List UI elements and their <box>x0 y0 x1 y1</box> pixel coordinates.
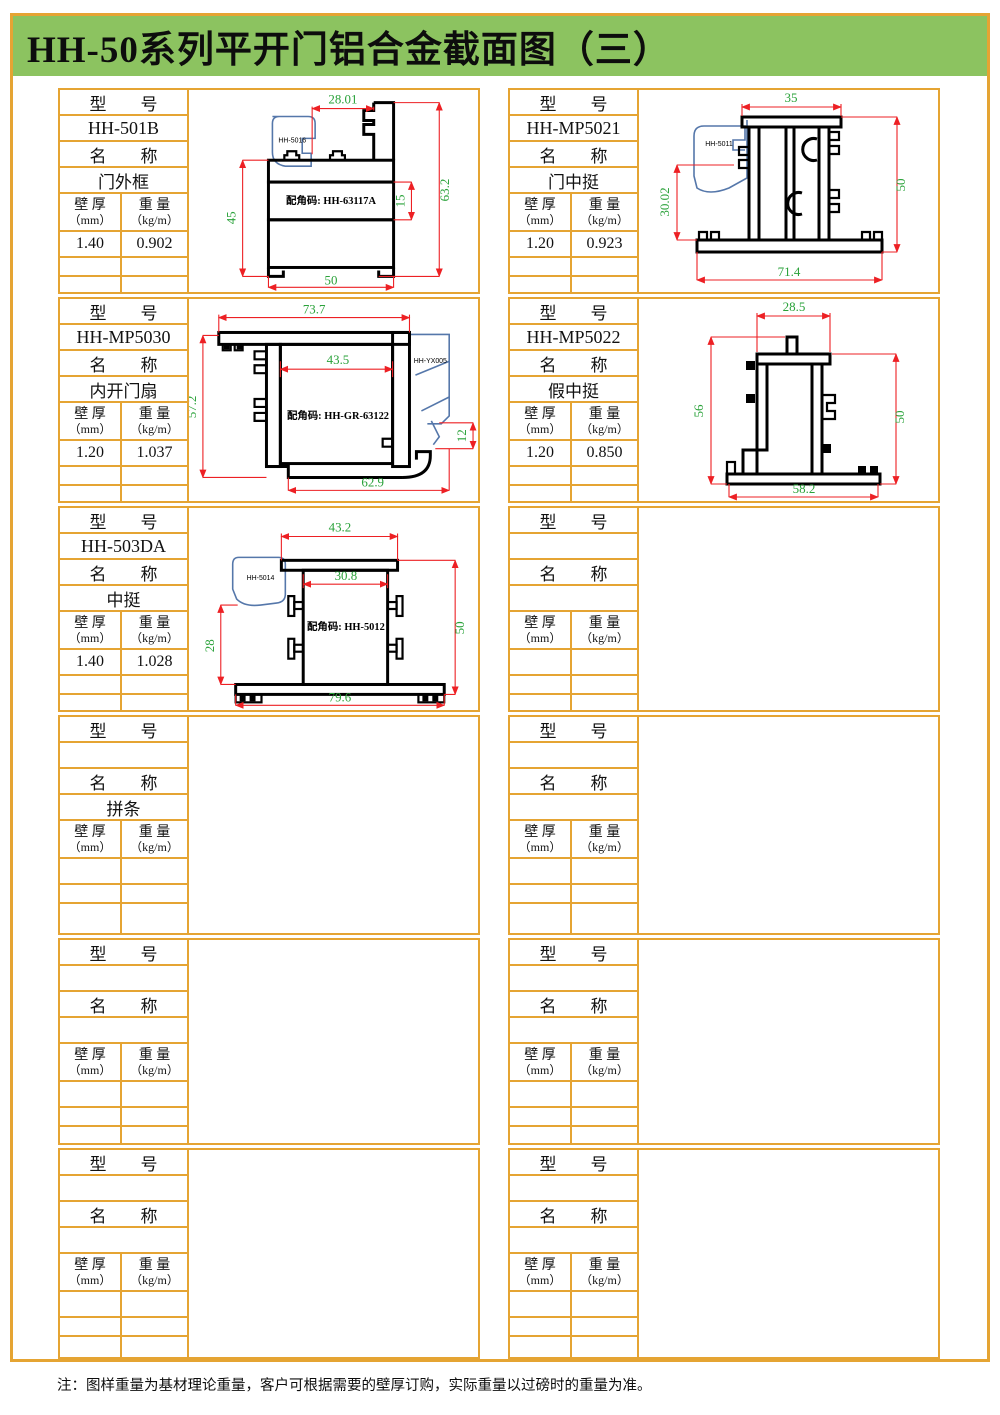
name-value: 内开门扇 <box>60 377 187 403</box>
wall-weight-values: 1.20 0.850 <box>510 441 637 467</box>
name-value <box>60 1018 187 1044</box>
empty-row <box>60 1337 187 1357</box>
profile-outline <box>219 332 431 477</box>
profile-outline <box>727 337 880 484</box>
dim-inner-label: 15 <box>393 194 408 207</box>
profile-outline <box>697 117 882 252</box>
name-label: 名 称 <box>510 992 637 1018</box>
weight-header-cell: 重 量 （kg/m） <box>572 194 637 230</box>
model-value: HH-MP5030 <box>60 325 187 351</box>
wall-header-cell: 壁 厚 （mm） <box>510 403 572 439</box>
wall-weight-values <box>510 1082 637 1108</box>
profile-drawing-hhmp5022: 28.5 56 50 58.2 <box>639 299 938 501</box>
model-value <box>510 1176 637 1202</box>
empty-row <box>510 885 637 904</box>
panel-empty-2: 型 号 名 称 壁 厚 （mm） 重 量 （kg/m） <box>508 715 940 935</box>
dim-bottom-label: 50 <box>325 272 338 287</box>
name-label: 名 称 <box>60 142 187 168</box>
model-value <box>60 1176 187 1202</box>
wall-weight-values: 1.20 0.923 <box>510 232 637 258</box>
spec-table: 型 号 名 称 壁 厚 （mm） 重 量 （kg/m） <box>60 940 189 1143</box>
corner-code: 配角码: HH-63117A <box>286 194 376 207</box>
wall-weight-header: 壁 厚 （mm） 重 量 （kg/m） <box>510 1254 637 1292</box>
wall-weight-header: 壁 厚 （mm） 重 量 （kg/m） <box>510 612 637 650</box>
spec-table: 型 号 名 称 拼条 壁 厚 （mm） 重 量 （kg/m） <box>60 717 189 933</box>
model-label: 型 号 <box>60 90 187 116</box>
empty-row <box>510 695 637 710</box>
model-label: 型 号 <box>60 717 187 743</box>
dim-top-label: 28.5 <box>783 299 806 314</box>
wall-header-cell: 壁 厚 （mm） <box>510 1254 572 1290</box>
panel-empty-5: 型 号 名 称 壁 厚 （mm） 重 量 （kg/m） <box>58 1148 480 1359</box>
wall-value <box>510 1082 572 1106</box>
name-value: 门外框 <box>60 168 187 194</box>
wall-header-cell: 壁 厚 （mm） <box>60 403 122 439</box>
profile-outline <box>268 103 393 277</box>
weight-header-cell: 重 量 （kg/m） <box>122 403 187 439</box>
corner-code: 配角码: HH-GR-63122 <box>287 409 389 422</box>
weight-value <box>122 1082 187 1106</box>
wall-weight-values <box>60 1082 187 1108</box>
dim-left-label: 56 <box>691 404 706 418</box>
empty-row <box>510 1108 637 1127</box>
wall-value <box>60 1082 122 1106</box>
panel-pintiao: 型 号 名 称 拼条 壁 厚 （mm） 重 量 （kg/m） <box>58 715 480 935</box>
weight-value <box>122 859 187 883</box>
dim-left-label: 57.2 <box>189 396 199 419</box>
empty-row <box>60 1127 187 1143</box>
wall-header-cell: 壁 厚 （mm） <box>60 1044 122 1080</box>
dim-right-label: 12 <box>454 429 469 442</box>
panel-hhmp5030: 型 号 HH-MP5030 名 称 内开门扇 壁 厚 （mm） 重 量 （kg/… <box>58 297 480 503</box>
dim-bottom-label: 62.9 <box>361 474 384 489</box>
weight-value: 0.850 <box>572 441 637 465</box>
panel-hh503da: 型 号 HH-503DA 名 称 中挺 壁 厚 （mm） 重 量 （kg/m） … <box>58 506 480 712</box>
wall-weight-values <box>510 1292 637 1318</box>
wall-weight-header: 壁 厚 （mm） 重 量 （kg/m） <box>510 194 637 232</box>
wall-weight-header: 壁 厚 （mm） 重 量 （kg/m） <box>60 194 187 232</box>
model-value: HH-MP5022 <box>510 325 637 351</box>
profile-drawing-hh503da: HH-5014 配角码: HH-5012 <box>189 508 478 710</box>
model-label: 型 号 <box>510 940 637 966</box>
wall-header-cell: 壁 厚 （mm） <box>510 612 572 648</box>
empty-row <box>60 467 187 486</box>
wall-header-cell: 壁 厚 （mm） <box>510 821 572 857</box>
panel-empty-1: 型 号 名 称 壁 厚 （mm） 重 量 （kg/m） <box>508 506 940 712</box>
wall-weight-values: 1.40 0.902 <box>60 232 187 258</box>
spec-table: 型 号 名 称 壁 厚 （mm） 重 量 （kg/m） <box>510 717 639 933</box>
wall-header-cell: 壁 厚 （mm） <box>60 1254 122 1290</box>
wall-weight-values <box>60 859 187 885</box>
empty-row <box>60 1318 187 1337</box>
name-label: 名 称 <box>60 992 187 1018</box>
dim-bottom-label: 58.2 <box>793 481 816 496</box>
model-value <box>60 966 187 992</box>
empty-row <box>510 1318 637 1337</box>
drawing-area <box>639 508 938 710</box>
weight-value <box>122 1292 187 1316</box>
footer-note: 注：图样重量为基材理论重量，客户可根据需要的壁厚订购，实际重量以过磅时的重量为准… <box>57 1374 652 1395</box>
part-label: HH-5016 <box>278 137 306 144</box>
weight-value <box>572 859 637 883</box>
model-label: 型 号 <box>60 299 187 325</box>
drawing-area: HH-YX005 配角码: HH-GR-63122 <box>189 299 478 501</box>
panel-empty-3: 型 号 名 称 壁 厚 （mm） 重 量 （kg/m） <box>58 938 480 1145</box>
drawing-area: HH-5016 配角码: HH-63117A <box>189 90 478 292</box>
model-label: 型 号 <box>510 508 637 534</box>
wall-weight-header: 壁 厚 （mm） 重 量 （kg/m） <box>60 403 187 441</box>
dim-top-label: 35 <box>785 90 798 105</box>
name-value: 拼条 <box>60 795 187 821</box>
empty-row <box>60 258 187 277</box>
name-label: 名 称 <box>60 351 187 377</box>
weight-value <box>572 1082 637 1106</box>
wall-weight-values: 1.40 1.028 <box>60 650 187 676</box>
model-value <box>510 966 637 992</box>
name-label: 名 称 <box>510 142 637 168</box>
drawing-area <box>639 717 938 933</box>
wall-weight-values <box>60 1292 187 1318</box>
empty-row <box>510 486 637 501</box>
wall-header-cell: 壁 厚 （mm） <box>510 194 572 230</box>
weight-value: 0.923 <box>572 232 637 256</box>
spec-table: 型 号 HH-MP5030 名 称 内开门扇 壁 厚 （mm） 重 量 （kg/… <box>60 299 189 501</box>
dim-top-label: 28.01 <box>328 92 357 107</box>
empty-row <box>60 676 187 695</box>
model-label: 型 号 <box>510 299 637 325</box>
drawing-area: 28.5 56 50 58.2 <box>639 299 938 501</box>
panel-hhmp5022: 型 号 HH-MP5022 名 称 假中挺 壁 厚 （mm） 重 量 （kg/m… <box>508 297 940 503</box>
gasket-part <box>409 334 449 444</box>
drawing-area: HH-5014 配角码: HH-5012 <box>189 508 478 710</box>
empty-row <box>60 885 187 904</box>
wall-value: 1.20 <box>510 232 572 256</box>
profile-drawing-hhmp5030: HH-YX005 配角码: HH-GR-63122 <box>189 299 478 501</box>
wall-header-cell: 壁 厚 （mm） <box>60 821 122 857</box>
wall-weight-header: 壁 厚 （mm） 重 量 （kg/m） <box>60 1254 187 1292</box>
empty-row <box>60 904 187 933</box>
empty-row <box>60 1108 187 1127</box>
weight-value: 1.028 <box>122 650 187 674</box>
drawing-area <box>639 940 938 1143</box>
wall-weight-header: 壁 厚 （mm） 重 量 （kg/m） <box>60 612 187 650</box>
empty-row <box>60 277 187 292</box>
model-value: HH-503DA <box>60 534 187 560</box>
title-bar: HH-50系列平开门铝合金截面图（三） <box>13 16 987 76</box>
weight-header-cell: 重 量 （kg/m） <box>122 1254 187 1290</box>
weight-header-cell: 重 量 （kg/m） <box>122 612 187 648</box>
drawing-area <box>189 1150 478 1357</box>
drawing-area <box>639 1150 938 1357</box>
wall-weight-values <box>510 859 637 885</box>
panel-hhmp5021: 型 号 HH-MP5021 名 称 门中挺 壁 厚 （mm） 重 量 （kg/m… <box>508 88 940 294</box>
name-value <box>60 1228 187 1254</box>
weight-header-cell: 重 量 （kg/m） <box>572 612 637 648</box>
wall-weight-header: 壁 厚 （mm） 重 量 （kg/m） <box>510 821 637 859</box>
empty-row <box>510 1337 637 1357</box>
dim-top-label: 73.7 <box>303 302 326 317</box>
empty-row <box>510 1127 637 1143</box>
wall-weight-header: 壁 厚 （mm） 重 量 （kg/m） <box>60 1044 187 1082</box>
spec-table: 型 号 名 称 壁 厚 （mm） 重 量 （kg/m） <box>510 940 639 1143</box>
empty-row <box>510 277 637 292</box>
model-value: HH-MP5021 <box>510 116 637 142</box>
dim-right-label: 50 <box>892 411 907 424</box>
spec-table: 型 号 HH-MP5021 名 称 门中挺 壁 厚 （mm） 重 量 （kg/m… <box>510 90 639 292</box>
name-value <box>510 795 637 821</box>
name-label: 名 称 <box>510 769 637 795</box>
name-value: 中挺 <box>60 586 187 612</box>
spec-table: 型 号 名 称 壁 厚 （mm） 重 量 （kg/m） <box>60 1150 189 1357</box>
dim-right-label: 50 <box>452 621 467 634</box>
weight-header-cell: 重 量 （kg/m） <box>572 1254 637 1290</box>
empty-row <box>60 695 187 710</box>
spec-table: 型 号 HH-MP5022 名 称 假中挺 壁 厚 （mm） 重 量 （kg/m… <box>510 299 639 501</box>
drawing-area <box>189 717 478 933</box>
model-label: 型 号 <box>60 508 187 534</box>
wall-value <box>510 859 572 883</box>
name-value <box>510 586 637 612</box>
spec-table: 型 号 名 称 壁 厚 （mm） 重 量 （kg/m） <box>510 1150 639 1357</box>
wall-weight-header: 壁 厚 （mm） 重 量 （kg/m） <box>510 1044 637 1082</box>
weight-value <box>572 1292 637 1316</box>
wall-header-cell: 壁 厚 （mm） <box>60 612 122 648</box>
dim-left-label: 45 <box>224 211 239 224</box>
part-label: HH-5011 <box>705 141 733 148</box>
weight-value: 0.902 <box>122 232 187 256</box>
empty-row <box>510 676 637 695</box>
model-label: 型 号 <box>510 1150 637 1176</box>
name-value: 门中挺 <box>510 168 637 194</box>
dim-bottom-label: 79.6 <box>329 689 352 704</box>
dim-top-label: 43.2 <box>329 520 352 535</box>
wall-value <box>510 1292 572 1316</box>
name-label: 名 称 <box>510 351 637 377</box>
model-value: HH-501B <box>60 116 187 142</box>
dim-inner-label: 43.5 <box>327 352 350 367</box>
empty-row <box>510 467 637 486</box>
weight-header-cell: 重 量 （kg/m） <box>572 821 637 857</box>
drawing-area: HH-5011 <box>639 90 938 292</box>
name-value <box>510 1228 637 1254</box>
profile-drawing-hhmp5021: HH-5011 <box>639 90 938 292</box>
wall-value <box>60 859 122 883</box>
wall-value: 1.20 <box>510 441 572 465</box>
model-label: 型 号 <box>60 1150 187 1176</box>
wall-header-cell: 壁 厚 （mm） <box>510 1044 572 1080</box>
model-value <box>510 534 637 560</box>
weight-header-cell: 重 量 （kg/m） <box>122 194 187 230</box>
wall-value: 1.40 <box>60 650 122 674</box>
name-value <box>510 1018 637 1044</box>
weight-header-cell: 重 量 （kg/m） <box>122 1044 187 1080</box>
model-label: 型 号 <box>510 717 637 743</box>
name-label: 名 称 <box>60 1202 187 1228</box>
empty-row <box>510 904 637 933</box>
name-label: 名 称 <box>60 769 187 795</box>
page-title: HH-50系列平开门铝合金截面图（三） <box>27 19 671 73</box>
weight-value: 1.037 <box>122 441 187 465</box>
wall-weight-header: 壁 厚 （mm） 重 量 （kg/m） <box>510 403 637 441</box>
dim-right-label: 50 <box>893 179 908 192</box>
model-value <box>60 743 187 769</box>
name-label: 名 称 <box>510 560 637 586</box>
model-label: 型 号 <box>510 90 637 116</box>
part-label: HH-YX005 <box>414 358 447 365</box>
wall-weight-header: 壁 厚 （mm） 重 量 （kg/m） <box>60 821 187 859</box>
model-value <box>510 743 637 769</box>
wall-value <box>60 1292 122 1316</box>
spec-table: 型 号 HH-501B 名 称 门外框 壁 厚 （mm） 重 量 （kg/m） … <box>60 90 189 292</box>
drawing-area <box>189 940 478 1143</box>
empty-row <box>510 258 637 277</box>
panel-empty-6: 型 号 名 称 壁 厚 （mm） 重 量 （kg/m） <box>508 1148 940 1359</box>
weight-header-cell: 重 量 （kg/m） <box>572 403 637 439</box>
wall-value <box>510 650 572 674</box>
name-label: 名 称 <box>510 1202 637 1228</box>
dim-bottom-label: 71.4 <box>778 264 801 279</box>
panel-empty-4: 型 号 名 称 壁 厚 （mm） 重 量 （kg/m） <box>508 938 940 1145</box>
weight-header-cell: 重 量 （kg/m） <box>572 1044 637 1080</box>
spec-table: 型 号 HH-503DA 名 称 中挺 壁 厚 （mm） 重 量 （kg/m） … <box>60 508 189 710</box>
corner-code: 配角码: HH-5012 <box>307 620 385 633</box>
wall-weight-values: 1.20 1.037 <box>60 441 187 467</box>
dim-inner-label: 30.8 <box>335 568 358 583</box>
spec-table: 型 号 名 称 壁 厚 （mm） 重 量 （kg/m） <box>510 508 639 710</box>
dimension-lines <box>711 313 896 497</box>
weight-header-cell: 重 量 （kg/m） <box>122 821 187 857</box>
weight-value <box>572 650 637 674</box>
dim-left-label: 28 <box>202 639 217 652</box>
name-label: 名 称 <box>60 560 187 586</box>
dim-left-label: 30.02 <box>657 187 672 216</box>
panel-hh501b: 型 号 HH-501B 名 称 门外框 壁 厚 （mm） 重 量 （kg/m） … <box>58 88 480 294</box>
dim-right-label: 63.2 <box>437 179 452 202</box>
model-label: 型 号 <box>60 940 187 966</box>
name-value: 假中挺 <box>510 377 637 403</box>
wall-header-cell: 壁 厚 （mm） <box>60 194 122 230</box>
wall-value: 1.40 <box>60 232 122 256</box>
wall-value: 1.20 <box>60 441 122 465</box>
catalog-page: { "header": { "title": "HH-50系列平开门铝合金截面图… <box>0 0 1000 1415</box>
part-label: HH-5014 <box>247 575 275 582</box>
wall-weight-values <box>510 650 637 676</box>
profile-drawing-hh501b: HH-5016 配角码: HH-63117A <box>189 90 478 292</box>
empty-row <box>60 486 187 501</box>
